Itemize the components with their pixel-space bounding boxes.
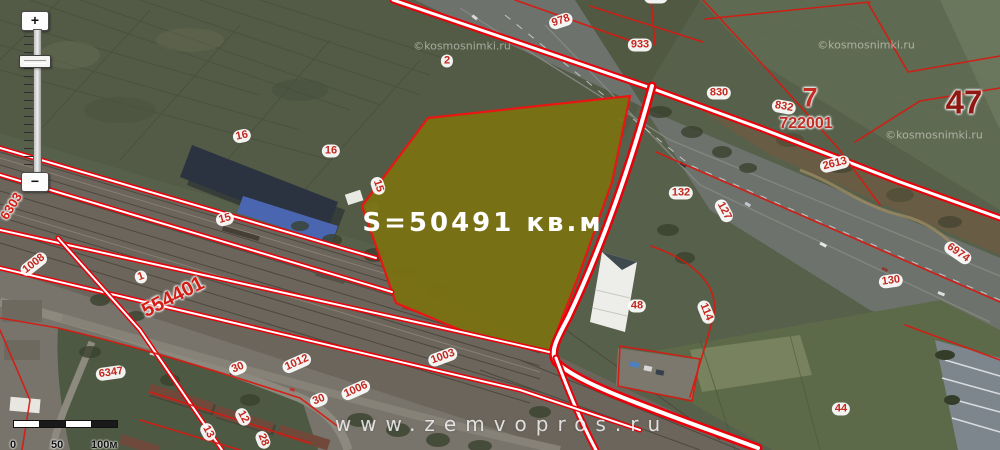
parcel-number-label: 47	[946, 86, 983, 119]
scale-label-50: 50	[51, 439, 63, 450]
site-watermark: www.zemvopros.ru	[335, 412, 669, 436]
imagery-watermark: ©kosmosnimki.ru	[885, 129, 983, 142]
zoom-slider-track[interactable]	[33, 29, 42, 181]
zoom-slider-handle[interactable]	[19, 55, 51, 68]
parcel-number-label: 44	[832, 403, 850, 416]
parcel-number-label: 132	[669, 187, 693, 200]
parcel-number-label: 2	[441, 55, 453, 68]
parcel-area-label: S=50491 кв.м	[362, 208, 603, 238]
parcel-number-label: 830	[707, 87, 731, 100]
scale-label-100: 100м	[91, 439, 118, 450]
map-viewport[interactable]: S=50491 кв.м 978933888216161515830832261…	[0, 0, 1000, 450]
scale-bar-segments	[13, 420, 118, 438]
scale-bar: 0 50 100м	[13, 420, 118, 450]
parcel-number-label: 722001	[779, 116, 832, 132]
parcel-number-label: 48	[628, 300, 646, 313]
imagery-watermark: ©kosmosnimki.ru	[413, 40, 511, 53]
parcel-number-label: 16	[322, 145, 340, 158]
scale-bar-labels: 0 50 100м	[13, 439, 118, 450]
scale-label-0: 0	[10, 439, 16, 450]
parcel-number-label: 7	[802, 85, 817, 112]
zoom-out-button[interactable]: −	[21, 172, 49, 192]
zoom-in-button[interactable]: +	[21, 11, 49, 31]
parcel-number-label: 933	[628, 39, 652, 52]
imagery-watermark: ©kosmosnimki.ru	[817, 39, 915, 52]
